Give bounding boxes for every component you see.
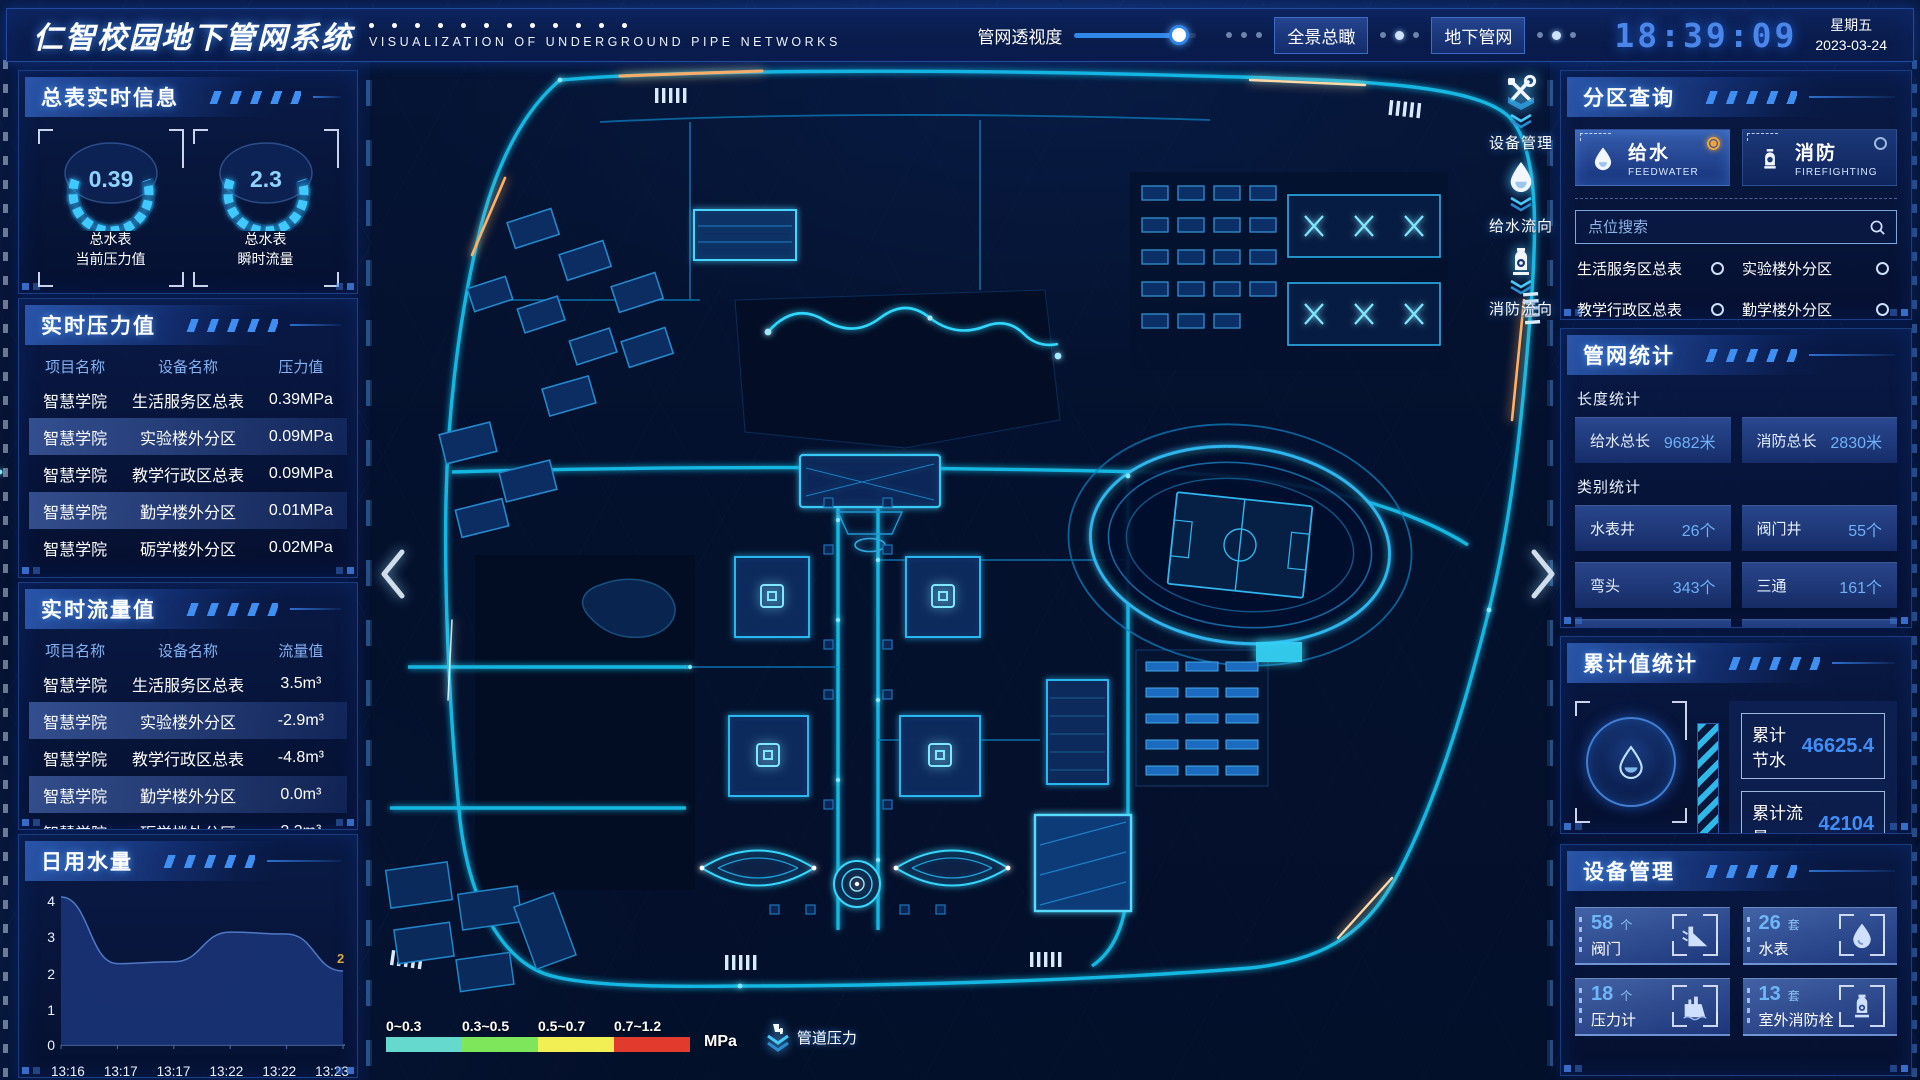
stat-fire-length: 消防总长2830米 bbox=[1742, 417, 1898, 463]
radio-icon[interactable] bbox=[1711, 303, 1724, 316]
app-title-block: 仁智校园地下管网系统 VISUALIZATION OF UNDERGROUND … bbox=[33, 13, 841, 57]
table-row[interactable]: 智慧学院勤学楼外分区0.0m³ bbox=[29, 776, 347, 813]
panel-device-management: 设备管理 58个 阀门 26套 水表 bbox=[1560, 844, 1912, 1076]
dashed-divider bbox=[1575, 198, 1897, 199]
panel-pipe-stats: 管网统计 长度统计 给水总长9682米 消防总长2830米 类别统计 水表井26… bbox=[1560, 328, 1912, 628]
panel-title: 管网统计 bbox=[1583, 340, 1675, 370]
panel-title: 总表实时信息 bbox=[41, 82, 179, 112]
stat-water-meter-wells: 水表井26个 bbox=[1575, 505, 1731, 551]
app-subtitle: VISUALIZATION OF UNDERGROUND PIPE NETWOR… bbox=[369, 35, 841, 49]
pipe-opacity-slider[interactable] bbox=[1074, 33, 1196, 38]
category-stats-label: 类别统计 bbox=[1577, 476, 1895, 497]
clock-day: 2023-03-24 bbox=[1815, 37, 1887, 53]
device-card-valves[interactable]: 58个 阀门 bbox=[1575, 907, 1730, 965]
slider-fill bbox=[1074, 33, 1179, 38]
panel-title: 日用水量 bbox=[41, 846, 133, 876]
daily-water-chart: 4 3 2 1 0 13:1613:1713:17 13:2213:2213:2… bbox=[25, 885, 351, 1078]
y-tick: 1 bbox=[37, 1002, 55, 1018]
gauge-instant-flow: 2.3 总水表瞬时流量 bbox=[193, 129, 339, 287]
y-tick: 0 bbox=[37, 1037, 55, 1053]
y-tick: 3 bbox=[37, 929, 55, 945]
table-row[interactable]: 智慧学院勤学楼外分区0.01MPa bbox=[29, 492, 347, 529]
gauge-dial: 2.3 bbox=[204, 135, 328, 231]
zone-option-list: 生活服务区总表 实验楼外分区 教学行政区总表 勤学楼外分区 砺学楼外分区 宿舍区… bbox=[1575, 248, 1897, 320]
tools-icon bbox=[1500, 72, 1542, 112]
tool-fire-flow[interactable]: 消防流向 bbox=[1489, 242, 1553, 323]
legend-range-labels: 0~0.30.3~0.5 0.5~0.70.7~1.2 bbox=[386, 1018, 690, 1034]
length-stats-label: 长度统计 bbox=[1577, 388, 1895, 409]
app-title: 仁智校园地下管网系统 bbox=[33, 13, 353, 57]
hydrant-icon bbox=[1505, 242, 1537, 278]
dots-decoration bbox=[1537, 31, 1576, 40]
tool-label: 设备管理 bbox=[1489, 132, 1553, 153]
title-dots-decoration bbox=[369, 23, 639, 28]
area-chart bbox=[25, 885, 353, 1078]
hydrant-icon bbox=[1757, 143, 1783, 173]
tool-label: 给水流向 bbox=[1489, 215, 1553, 236]
table-row[interactable]: 智慧学院实验楼外分区0.09MPa bbox=[29, 418, 347, 455]
pipe-opacity-slider-label: 管网透视度 bbox=[977, 23, 1062, 48]
pipe-pressure-legend: 0~0.30.3~0.5 0.5~0.70.7~1.2 MPa 管道压力 bbox=[386, 1018, 857, 1052]
chevron-down-icon bbox=[1508, 279, 1534, 296]
stripes-decoration bbox=[1705, 91, 1797, 104]
stat-clipped bbox=[1575, 619, 1731, 628]
clock-weekday: 星期五 bbox=[1830, 17, 1872, 33]
accumulated-water-saved: 累计节水46625.4 bbox=[1741, 713, 1885, 779]
stripes-decoration bbox=[163, 855, 255, 868]
accumulated-flow: 累计流量42104 bbox=[1741, 791, 1885, 834]
device-card-outdoor-hydrants[interactable]: 13套 室外消防栓 bbox=[1743, 978, 1898, 1036]
tab-label: 给水 bbox=[1628, 138, 1699, 165]
gauge-dial: 0.39 bbox=[49, 135, 173, 231]
search-icon[interactable] bbox=[1869, 219, 1886, 236]
water-emblem bbox=[1575, 701, 1687, 823]
stat-feedwater-length: 给水总长9682米 bbox=[1575, 417, 1731, 463]
gauge-value: 0.39 bbox=[88, 166, 133, 192]
stripe-bar-decoration bbox=[1697, 723, 1719, 834]
dashboard-root: 仁智校园地下管网系统 VISUALIZATION OF UNDERGROUND … bbox=[0, 0, 1920, 1080]
radio-icon[interactable] bbox=[1876, 262, 1889, 275]
legend-color-bar bbox=[386, 1037, 690, 1052]
device-card-pressure-gauges[interactable]: 18个 压力计 bbox=[1575, 978, 1730, 1036]
gauge-label: 总水表瞬时流量 bbox=[193, 229, 339, 270]
series-end-label: 2 bbox=[337, 951, 344, 966]
tab-sublabel: FEEDWATER bbox=[1628, 167, 1699, 178]
pipe-pressure-icon bbox=[765, 1022, 791, 1052]
radio-icon[interactable] bbox=[1711, 262, 1724, 275]
gauge-label: 总水表当前压力值 bbox=[38, 229, 184, 270]
panel-title: 设备管理 bbox=[1583, 856, 1675, 886]
panel-accumulated: 累计值统计 累计节水46625.4 累计流量42104 bbox=[1560, 636, 1912, 834]
radio-icon[interactable] bbox=[1876, 303, 1889, 316]
tab-sublabel: FIREFIGHTING bbox=[1795, 167, 1878, 178]
zone-option[interactable]: 实验楼外分区 bbox=[1740, 248, 1897, 289]
gauge-value: 2.3 bbox=[250, 166, 282, 192]
table-row[interactable]: 智慧学院生活服务区总表0.39MPa bbox=[29, 381, 347, 418]
legend-unit: MPa bbox=[704, 1033, 737, 1051]
tab-feedwater[interactable]: 给水 FEEDWATER bbox=[1575, 129, 1730, 186]
zone-option[interactable]: 生活服务区总表 bbox=[1575, 248, 1732, 289]
stat-elbows: 弯头343个 bbox=[1575, 562, 1731, 608]
clock-date: 星期五 2023-03-24 bbox=[1815, 15, 1887, 56]
table-row[interactable]: 智慧学院实验楼外分区-2.9m³ bbox=[29, 702, 347, 739]
tab-firefighting[interactable]: 消防 FIREFIGHTING bbox=[1742, 129, 1897, 186]
panorama-overview-button[interactable]: 全景总瞰 bbox=[1274, 17, 1368, 54]
dots-decoration bbox=[1226, 32, 1262, 38]
stripes-decoration bbox=[1728, 657, 1820, 670]
point-search-input[interactable] bbox=[1586, 218, 1869, 237]
stripes-decoration bbox=[186, 603, 278, 616]
map-page-right-arrow[interactable] bbox=[1528, 548, 1558, 600]
panel-title: 分区查询 bbox=[1583, 82, 1675, 112]
point-search-box[interactable] bbox=[1575, 210, 1897, 244]
top-bar: 仁智校园地下管网系统 VISUALIZATION OF UNDERGROUND … bbox=[6, 8, 1914, 62]
zone-option[interactable]: 教学行政区总表 bbox=[1575, 289, 1732, 320]
pressure-table: 项目名称设备名称压力值 智慧学院生活服务区总表0.39MPa 智慧学院实验楼外分… bbox=[29, 351, 347, 566]
water-drop-icon bbox=[1590, 143, 1616, 173]
y-tick: 4 bbox=[37, 893, 55, 909]
table-row[interactable]: 智慧学院教学行政区总表0.09MPa bbox=[29, 455, 347, 492]
tool-device-management[interactable]: 设备管理 bbox=[1489, 72, 1553, 157]
chevron-down-icon bbox=[1508, 196, 1534, 213]
panel-title: 实时流量值 bbox=[41, 594, 156, 624]
table-row[interactable]: 智慧学院教学行政区总表-4.8m³ bbox=[29, 739, 347, 776]
gauge-total-pressure: 0.39 总水表当前压力值 bbox=[38, 129, 184, 287]
table-row[interactable]: 智慧学院生活服务区总表3.5m³ bbox=[29, 665, 347, 702]
map-page-left-arrow[interactable] bbox=[378, 548, 408, 600]
stripes-decoration bbox=[1705, 865, 1797, 878]
dots-decoration bbox=[1380, 31, 1419, 40]
panel-title: 实时压力值 bbox=[41, 310, 156, 340]
tool-label: 消防流向 bbox=[1489, 298, 1553, 319]
stat-clipped bbox=[1742, 619, 1898, 628]
table-row[interactable]: 智慧学院砺学楼外分区0.02MPa bbox=[29, 529, 347, 566]
device-card-water-meters[interactable]: 26套 水表 bbox=[1743, 907, 1898, 965]
panel-realtime-pressure: 实时压力值 项目名称设备名称压力值 智慧学院生活服务区总表0.39MPa 智慧学… bbox=[18, 298, 358, 578]
water-drop-icon bbox=[1614, 742, 1648, 782]
slider-thumb[interactable] bbox=[1169, 25, 1189, 45]
radio-unselected-icon bbox=[1874, 137, 1887, 150]
y-tick: 2 bbox=[37, 966, 55, 982]
stripes-decoration bbox=[209, 91, 301, 104]
stripes-decoration bbox=[1705, 349, 1797, 362]
tool-feedwater-flow[interactable]: 给水流向 bbox=[1489, 159, 1553, 240]
panel-daily-water: 日用水量 4 3 2 1 0 13:1613:1713:17 13:2213:2… bbox=[18, 834, 358, 1078]
stripes-decoration bbox=[186, 319, 278, 332]
flow-table: 项目名称设备名称流量值 智慧学院生活服务区总表3.5m³ 智慧学院实验楼外分区-… bbox=[29, 635, 347, 830]
zone-option[interactable]: 勤学楼外分区 bbox=[1740, 289, 1897, 320]
panel-realtime-info: 总表实时信息 0.39 总水表当前压力值 bbox=[18, 70, 358, 294]
underground-pipes-button[interactable]: 地下管网 bbox=[1431, 17, 1525, 54]
stat-tees: 三通161个 bbox=[1742, 562, 1898, 608]
panel-title: 累计值统计 bbox=[1583, 648, 1698, 678]
table-header-row: 项目名称设备名称流量值 bbox=[29, 635, 347, 665]
panel-realtime-flow: 实时流量值 项目名称设备名称流量值 智慧学院生活服务区总表3.5m³ 智慧学院实… bbox=[18, 582, 358, 830]
table-header-row: 项目名称设备名称压力值 bbox=[29, 351, 347, 381]
tab-label: 消防 bbox=[1795, 138, 1878, 165]
water-drop-icon bbox=[1506, 159, 1536, 195]
radio-selected-icon bbox=[1707, 137, 1720, 150]
stat-valve-wells: 阀门井55个 bbox=[1742, 505, 1898, 551]
legend-label: 管道压力 bbox=[797, 1027, 857, 1048]
clock-time: 18:39:09 bbox=[1614, 16, 1797, 55]
panel-zone-query: 分区查询 给水 FEEDWATER 消防 FIREFIGHTING bbox=[1560, 70, 1912, 320]
chevron-down-icon bbox=[1508, 113, 1534, 130]
x-axis-labels: 13:1613:1713:17 13:2213:2213:23 bbox=[51, 1064, 349, 1078]
table-row[interactable]: 智慧学院砺学楼外分区2.3m³ bbox=[29, 813, 347, 830]
